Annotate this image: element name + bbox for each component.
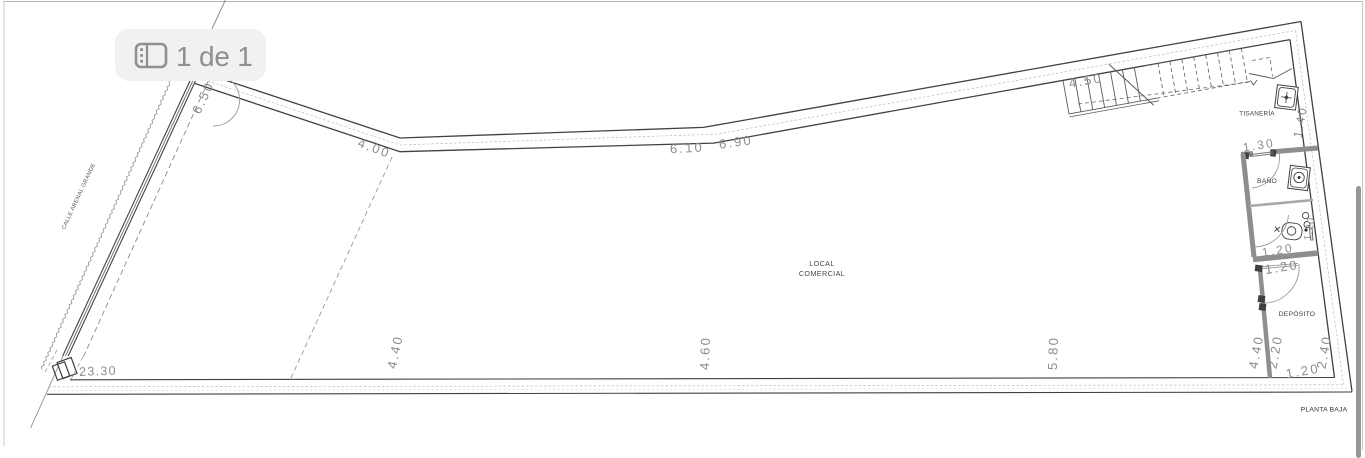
svg-text:LOCAL: LOCAL xyxy=(809,259,835,268)
svg-text:4.60: 4.60 xyxy=(697,336,713,371)
svg-text:6.10: 6.10 xyxy=(670,140,705,157)
svg-text:TISANERÍA: TISANERÍA xyxy=(1239,109,1275,118)
svg-text:DEPÓSITO: DEPÓSITO xyxy=(1279,309,1316,318)
svg-text:PLANTA BAJA: PLANTA BAJA xyxy=(1301,407,1348,414)
svg-text:23.30: 23.30 xyxy=(79,364,117,379)
svg-text:BAÑO: BAÑO xyxy=(1257,176,1277,185)
svg-text:COMERCIAL: COMERCIAL xyxy=(799,269,845,278)
svg-text:5.80: 5.80 xyxy=(1045,336,1061,371)
